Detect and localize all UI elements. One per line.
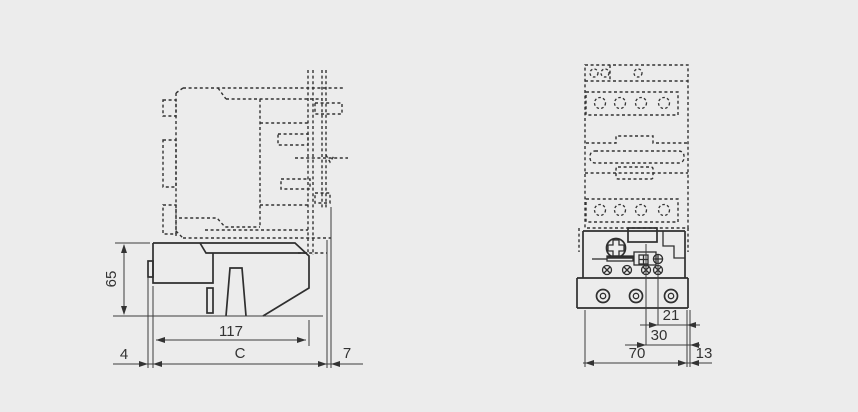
pole-terminal-icons [597,290,678,303]
contactor-screw-icon [601,69,609,77]
dim-label-4: 4 [120,346,128,363]
side-view: 65 117 4 C 7 [103,70,363,368]
contactor-terminal-icon [636,98,647,109]
contactor-screw-icon [634,69,642,77]
contactor-terminal-icon [615,98,626,109]
dim-label-70: 70 [629,345,646,362]
dimension-width-117: 117 [156,320,309,346]
contactor-outline-side [163,70,348,255]
nameplate [590,151,684,163]
dim-label-13: 13 [696,345,713,362]
contactor-outline-front [579,65,688,252]
mounting-tab [628,228,657,242]
relay-outline-front [577,228,688,308]
reset-dial-icon [607,239,626,258]
dim-label-C: C [235,345,246,362]
dimension-height: 65 [103,243,150,315]
front-view: 21 30 70 13 [577,65,712,367]
dimension-row-bottom: 4 C 7 [113,207,363,368]
contactor-terminal-icon [615,205,626,216]
technical-drawing: 65 117 4 C 7 [0,0,858,412]
contactor-terminal-icon [659,98,670,109]
stop-slider [592,256,633,261]
drawing-canvas: 65 117 4 C 7 [0,0,858,412]
dim-label-65: 65 [103,271,120,288]
contactor-terminal-icon [636,205,647,216]
dim-label-117: 117 [219,323,243,340]
dim-label-30: 30 [651,327,668,344]
dim-label-7: 7 [343,345,351,362]
contactor-terminal-icon [595,205,606,216]
contactor-terminal-icon [595,98,606,109]
contactor-terminal-icon [659,205,670,216]
relay-outline-side [148,243,309,316]
contactor-screw-icon [590,69,598,77]
dim-label-21: 21 [663,307,680,324]
screw-terminal-icons [603,266,663,275]
